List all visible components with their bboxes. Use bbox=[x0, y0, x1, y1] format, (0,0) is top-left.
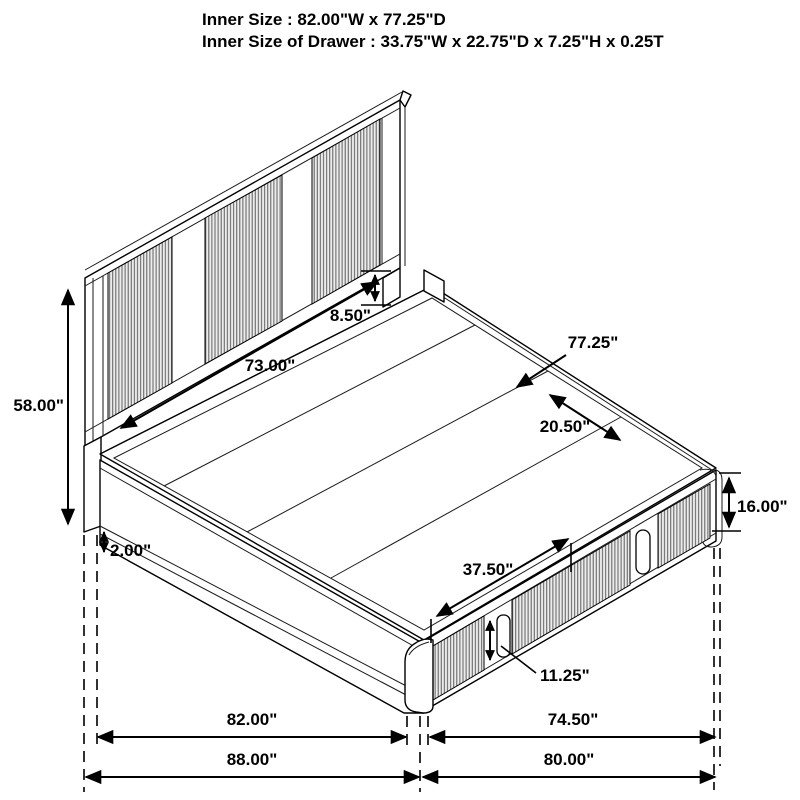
label-slat-width: 20.50" bbox=[540, 417, 591, 436]
headboard-cap-bevel bbox=[400, 91, 411, 107]
title-line-2: Inner Size of Drawer : 33.75"W x 22.75"D… bbox=[202, 32, 664, 51]
bed-dimension-diagram: Inner Size : 82.00"W x 77.25"D Inner Siz… bbox=[0, 0, 800, 800]
label-platform-depth: 77.25" bbox=[568, 333, 619, 352]
label-drawer-span-width: 37.50" bbox=[463, 560, 514, 579]
label-overall-depth: 80.00" bbox=[544, 750, 595, 769]
label-drawer-face-height: 11.25" bbox=[540, 666, 590, 685]
title-line-1: Inner Size : 82.00"W x 77.25"D bbox=[202, 10, 446, 29]
front-left-corner-post bbox=[405, 639, 433, 713]
label-leg-clearance: 2.00" bbox=[110, 541, 151, 560]
label-footboard-height: 16.00" bbox=[737, 497, 788, 516]
bed-drawing: Inner Size : 82.00"W x 77.25"D Inner Siz… bbox=[0, 0, 800, 800]
label-headboard-height: 58.00" bbox=[13, 396, 64, 415]
label-headboard-panel-width: 73.00" bbox=[245, 356, 296, 375]
label-inner-width: 82.00" bbox=[227, 710, 278, 729]
headboard-left-leg bbox=[84, 437, 101, 532]
drawer-handle-slot-right bbox=[636, 530, 650, 574]
label-footboard-inner-depth: 74.50" bbox=[548, 710, 599, 729]
label-headboard-rail-gap: 8.50" bbox=[330, 306, 371, 325]
label-overall-width: 88.00" bbox=[227, 750, 278, 769]
